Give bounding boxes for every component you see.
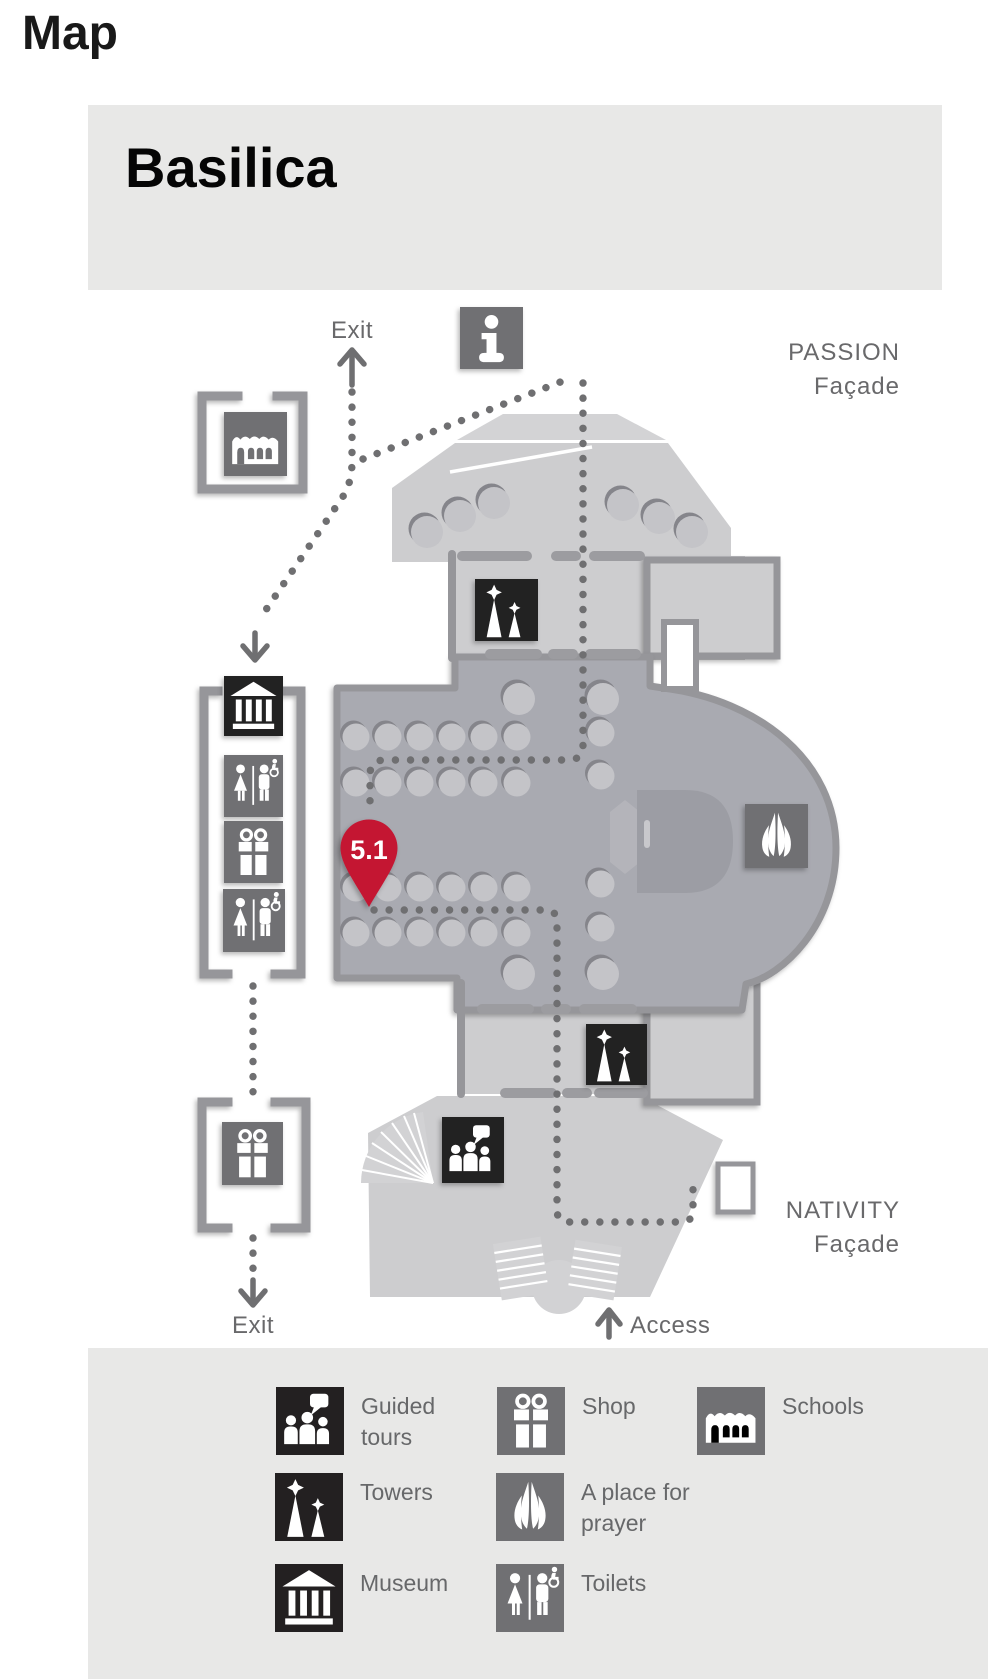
- entrance-stairs-left: [493, 1237, 549, 1301]
- towers-icon: [586, 1024, 647, 1085]
- legend-item-toilets: Toilets: [496, 1564, 703, 1632]
- legend-label: Guided tours: [361, 1391, 483, 1452]
- toilets-icon: [496, 1564, 564, 1632]
- legend-label: A place for prayer: [581, 1477, 703, 1538]
- legend-item-schools: Schools: [697, 1387, 904, 1455]
- exit-top-label: Exit: [331, 317, 373, 344]
- legend-item-guided-tours: Guided tours: [276, 1387, 483, 1455]
- information-icon: [460, 307, 523, 369]
- towers-icon: [275, 1473, 343, 1541]
- access-arrow-icon: [598, 1310, 620, 1337]
- legend-item-towers: Towers: [275, 1473, 482, 1541]
- nativity-plaza: [361, 1096, 723, 1314]
- sacristy-structure: [718, 1164, 753, 1212]
- exit-top-arrow-icon: [340, 350, 364, 385]
- shop-icon: [497, 1387, 565, 1455]
- map-legend: .lgi .bx{width:100px;height:100px;} .lgi…: [88, 1348, 988, 1679]
- route-down-arrow-icon: [243, 633, 267, 660]
- shop-icon: [222, 1122, 283, 1185]
- nativity-facade-label: NATIVITY: [786, 1197, 900, 1224]
- legend-item-prayer: A place for prayer: [496, 1473, 703, 1541]
- museum-icon: [275, 1564, 343, 1632]
- entrance-stairs-right: [567, 1240, 622, 1301]
- basilica-map-page: Map Basilica: [0, 0, 988, 1679]
- ambulatory-notch: [664, 622, 696, 689]
- shop-icon: [224, 821, 283, 883]
- legend-label: Shop: [582, 1391, 704, 1422]
- legend-label: Schools: [782, 1391, 904, 1422]
- museum-icon: [224, 676, 283, 736]
- passion-facade-label: PASSION: [788, 339, 900, 366]
- legend-label: Towers: [360, 1477, 482, 1508]
- exit-bottom-arrow-icon: [241, 1280, 265, 1305]
- passion-facade-label-line2: Façade: [814, 373, 900, 400]
- toilets-icon: [223, 889, 285, 952]
- legend-label: Toilets: [581, 1568, 703, 1599]
- prayer-icon: [745, 804, 808, 868]
- towers-icon: [475, 579, 538, 641]
- toilets-icon: [224, 755, 283, 817]
- legend-label: Museum: [360, 1568, 482, 1599]
- nativity-facade-label-line2: Façade: [814, 1231, 900, 1258]
- pin-label: 5.1: [350, 835, 388, 865]
- access-label: Access: [630, 1312, 710, 1339]
- prayer-icon: [496, 1473, 564, 1541]
- fan-staircase: [361, 1112, 433, 1183]
- schools-icon: [224, 412, 287, 476]
- schools-icon: [697, 1387, 765, 1455]
- guided-tours-icon: [442, 1117, 504, 1183]
- legend-item-museum: Museum: [275, 1564, 482, 1632]
- legend-item-shop: Shop: [497, 1387, 704, 1455]
- guided-tours-icon: [276, 1387, 344, 1455]
- exit-bottom-label: Exit: [232, 1312, 274, 1339]
